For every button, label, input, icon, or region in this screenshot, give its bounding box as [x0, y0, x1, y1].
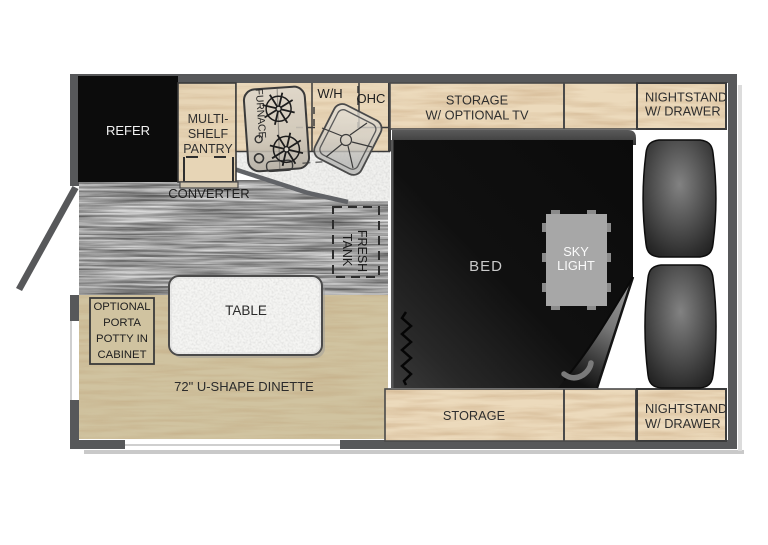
svg-text:SKY: SKY — [563, 244, 589, 259]
svg-text:W/ DRAWER: W/ DRAWER — [645, 416, 721, 431]
svg-text:FRESH: FRESH — [355, 230, 369, 272]
svg-text:NIGHTSTAND: NIGHTSTAND — [645, 401, 727, 416]
svg-text:SHELF: SHELF — [188, 127, 229, 141]
svg-text:TANK: TANK — [340, 234, 354, 267]
svg-text:MULTI-: MULTI- — [188, 112, 229, 126]
svg-text:72" U-SHAPE DINETTE: 72" U-SHAPE DINETTE — [174, 379, 314, 394]
svg-text:CONVERTER: CONVERTER — [168, 186, 249, 201]
svg-text:W/H: W/H — [317, 86, 342, 101]
svg-text:STORAGE: STORAGE — [443, 408, 505, 423]
svg-text:POTTY IN: POTTY IN — [96, 333, 148, 345]
svg-text:LIGHT: LIGHT — [557, 258, 595, 273]
svg-text:REFER: REFER — [106, 123, 150, 138]
svg-text:PORTA: PORTA — [103, 317, 141, 329]
svg-text:CABINET: CABINET — [98, 349, 147, 361]
svg-text:TABLE: TABLE — [225, 303, 267, 318]
svg-text:OPTIONAL: OPTIONAL — [93, 301, 150, 313]
svg-text:PANTRY: PANTRY — [183, 142, 233, 156]
svg-text:STORAGE: STORAGE — [446, 93, 508, 108]
svg-text:W/ OPTIONAL TV: W/ OPTIONAL TV — [425, 108, 529, 123]
svg-text:OHC: OHC — [357, 91, 386, 106]
svg-text:W/ DRAWER: W/ DRAWER — [645, 104, 721, 119]
svg-text:NIGHTSTAND: NIGHTSTAND — [645, 90, 727, 105]
svg-text:BED: BED — [469, 258, 503, 275]
